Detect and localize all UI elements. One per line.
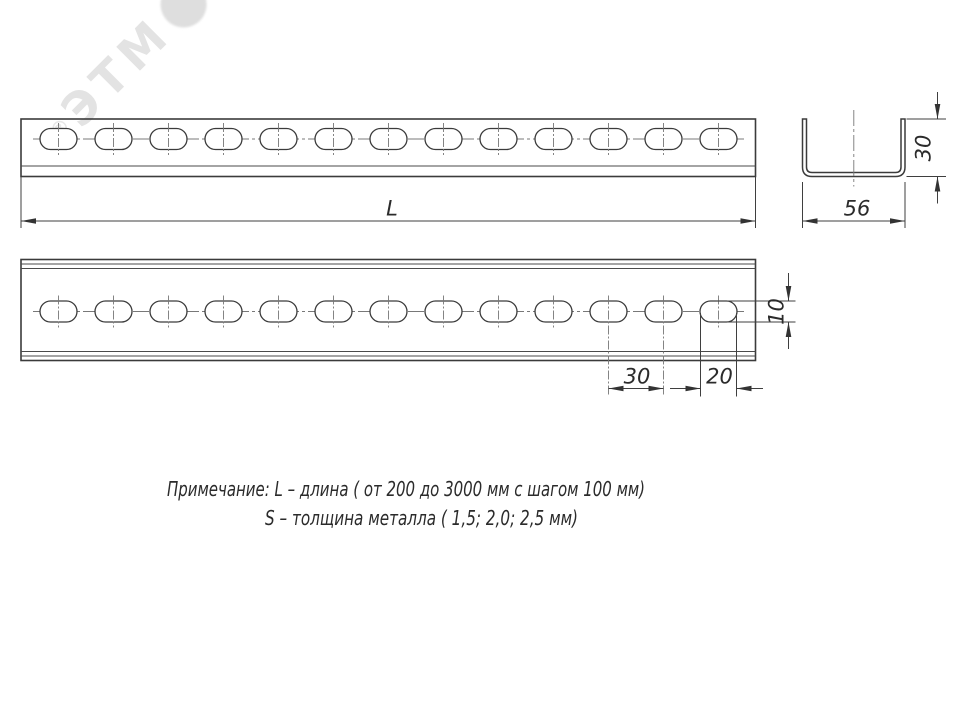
side-view: L (21, 119, 756, 228)
arrowhead-left-icon (737, 386, 752, 392)
note-line-2: S – толщина металла ( 1,5; 2,0; 2,5 мм) (265, 506, 578, 530)
dim-section-width-label: 56 (844, 197, 871, 221)
dim-slot-length-label: 20 (706, 365, 733, 389)
dimension-slot-length: 20 (670, 313, 763, 397)
note-line-1: Примечание: L – длина ( от 200 до 3000 м… (167, 477, 645, 501)
dimension-hole-pitch: 30 (609, 365, 664, 392)
arrowhead-right-icon (649, 386, 664, 392)
front-view: 30 20 10 (21, 260, 796, 397)
arrowhead-left-icon (21, 218, 36, 224)
dim-hole-pitch-label: 30 (624, 365, 651, 389)
arrowhead-left-icon (803, 218, 818, 224)
section-view: 56 30 (803, 92, 947, 228)
dim-length-label: L (386, 197, 398, 221)
dimension-section-width: 56 (803, 182, 906, 228)
arrowhead-down-icon (935, 104, 941, 119)
technical-drawing: L 30 (0, 0, 960, 720)
arrowhead-up-icon (935, 177, 941, 192)
arrowhead-right-icon (686, 386, 701, 392)
dim-section-height-label: 30 (912, 135, 936, 162)
note-block: Примечание: L – длина ( от 200 до 3000 м… (167, 477, 645, 530)
dimension-section-height: 30 (907, 92, 947, 204)
drawing-sheet: ® ЭТМ L (0, 0, 960, 720)
dimension-length: L (21, 177, 756, 229)
arrowhead-right-icon (890, 218, 905, 224)
arrowhead-left-icon (609, 386, 624, 392)
dim-slot-width-label: 10 (765, 298, 789, 325)
arrowhead-right-icon (741, 218, 756, 224)
